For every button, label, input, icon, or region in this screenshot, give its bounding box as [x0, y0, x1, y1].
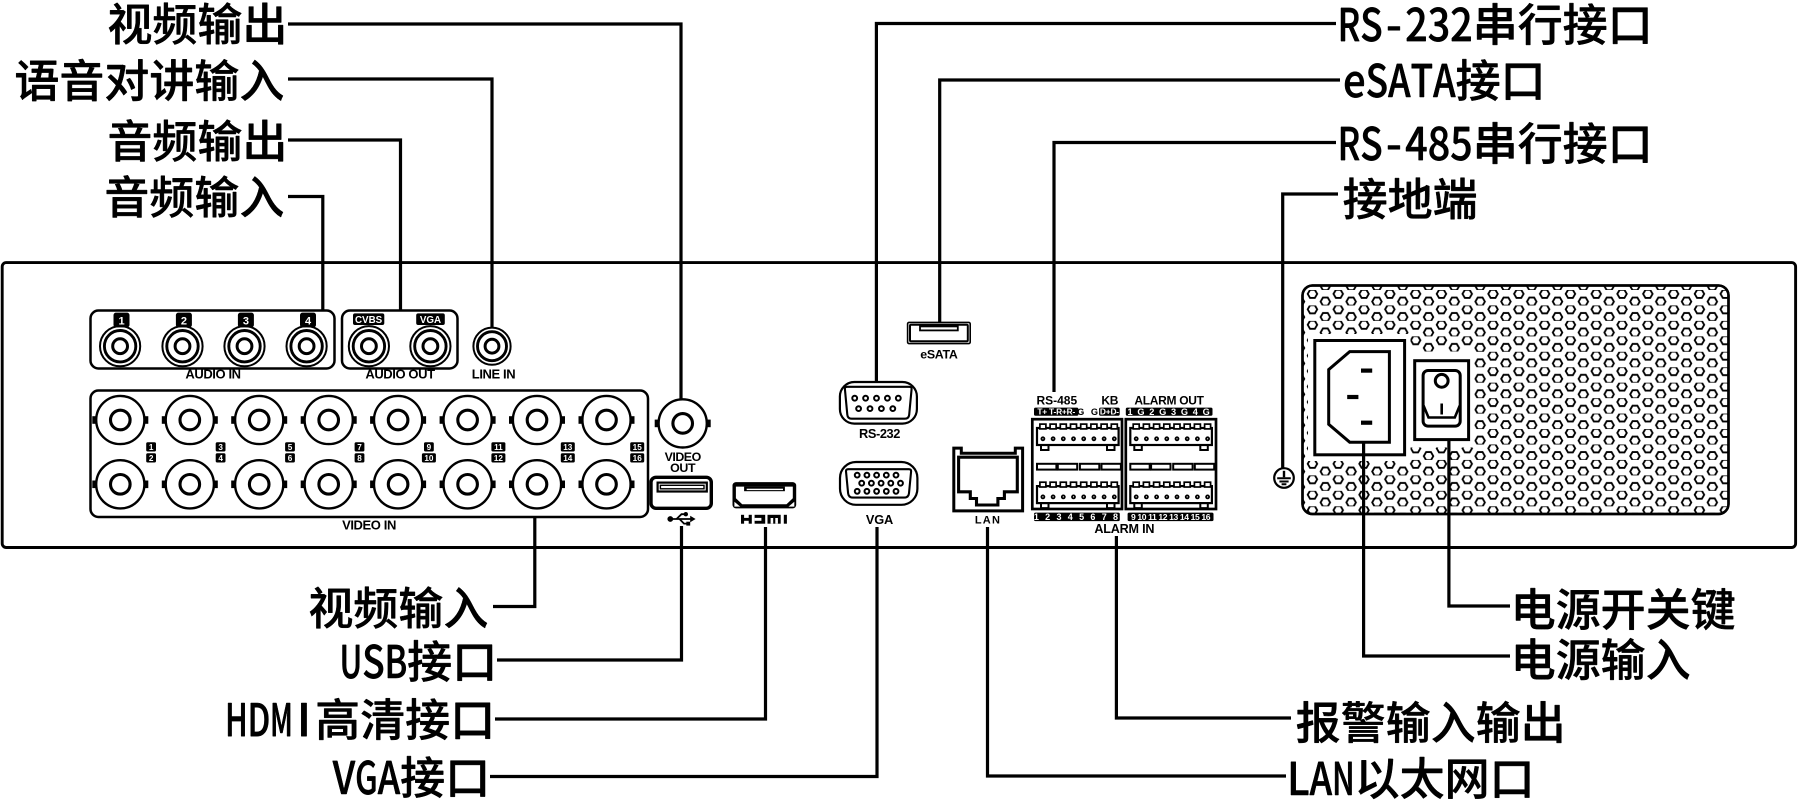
svg-text:LAN: LAN — [975, 515, 1001, 527]
svg-text:RS-232: RS-232 — [859, 426, 900, 441]
svg-text:2: 2 — [181, 316, 187, 328]
svg-text:AUDIO OUT: AUDIO OUT — [365, 367, 435, 382]
svg-text:AUDIO IN: AUDIO IN — [185, 367, 240, 382]
svg-text:ALARM OUT: ALARM OUT — [1134, 394, 1204, 408]
svg-text:12: 12 — [494, 454, 504, 463]
svg-text:1: 1 — [118, 316, 124, 328]
svg-text:4: 4 — [218, 454, 223, 463]
svg-text:KB: KB — [1101, 394, 1118, 408]
svg-text:6: 6 — [288, 454, 293, 463]
svg-text:9 10 11 12 13 14 15 16: 9 10 11 12 13 14 15 16 — [1131, 512, 1211, 522]
svg-text:13: 13 — [563, 443, 573, 452]
svg-text:OUT: OUT — [670, 461, 696, 475]
svg-text:16: 16 — [633, 454, 643, 463]
svg-text:CVBS: CVBS — [355, 315, 383, 326]
svg-text:VIDEO IN: VIDEO IN — [342, 518, 396, 533]
svg-text:G G: G G — [1077, 407, 1100, 417]
svg-text:2: 2 — [149, 454, 154, 463]
svg-text:ALARM IN: ALARM IN — [1094, 522, 1154, 536]
svg-text:3: 3 — [243, 316, 249, 328]
svg-text:3: 3 — [218, 443, 223, 452]
svg-text:eSATA: eSATA — [920, 348, 958, 362]
svg-text:14: 14 — [563, 454, 573, 463]
svg-text:D+D-: D+D- — [1100, 407, 1119, 417]
svg-text:VGA: VGA — [866, 512, 893, 527]
svg-text:10: 10 — [424, 454, 434, 463]
svg-text:4: 4 — [305, 316, 312, 328]
svg-text:1: 1 — [149, 443, 154, 452]
svg-text:1 G 2 G 3 G 4 G: 1 G 2 G 3 G 4 G — [1127, 407, 1210, 417]
svg-text:1 2 3 4 5 6 7 8: 1 2 3 4 5 6 7 8 — [1034, 512, 1120, 522]
svg-text:LINE IN: LINE IN — [472, 367, 515, 382]
svg-text:RS-485: RS-485 — [1036, 394, 1077, 408]
svg-text:9: 9 — [427, 443, 432, 452]
svg-text:T+ T-R+R-: T+ T-R+R- — [1037, 407, 1075, 417]
svg-text:15: 15 — [633, 443, 643, 452]
svg-text:11: 11 — [494, 443, 503, 452]
svg-text:5: 5 — [288, 443, 293, 452]
svg-text:VGA: VGA — [420, 315, 441, 326]
svg-text:8: 8 — [357, 454, 362, 463]
svg-text:7: 7 — [357, 443, 362, 452]
